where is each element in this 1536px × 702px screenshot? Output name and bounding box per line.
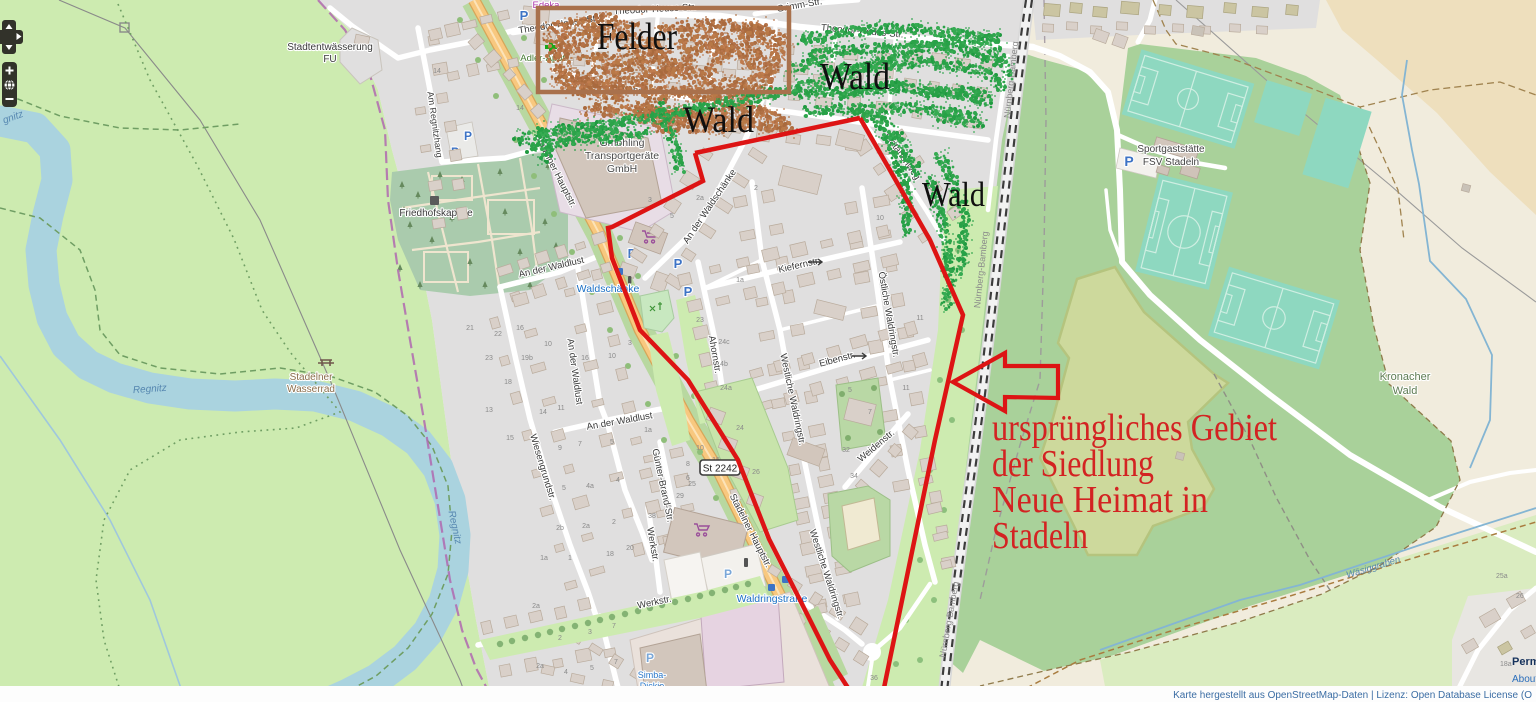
svg-text:P: P <box>724 567 732 581</box>
svg-text:11: 11 <box>557 405 564 412</box>
svg-text:Waldschänke: Waldschänke <box>577 283 640 295</box>
svg-text:4a: 4a <box>586 483 594 490</box>
svg-text:14: 14 <box>516 105 524 112</box>
svg-text:14: 14 <box>433 68 441 75</box>
svg-text:18: 18 <box>504 379 512 386</box>
svg-text:P: P <box>646 651 654 665</box>
svg-text:34: 34 <box>850 473 858 480</box>
svg-text:25: 25 <box>688 481 696 488</box>
svg-text:8: 8 <box>686 461 690 468</box>
svg-text:Karte hergestellt aus OpenStre: Karte hergestellt aus OpenStreetMap-Date… <box>1173 690 1532 701</box>
svg-text:GmbH: GmbH <box>607 163 637 175</box>
svg-text:15: 15 <box>506 435 514 442</box>
svg-text:26: 26 <box>1516 593 1524 600</box>
svg-text:2: 2 <box>612 519 616 526</box>
svg-text:4: 4 <box>564 669 568 676</box>
svg-text:1a: 1a <box>644 427 652 434</box>
svg-text:10: 10 <box>876 215 884 222</box>
svg-text:21: 21 <box>466 325 474 332</box>
svg-text:5: 5 <box>562 485 566 492</box>
svg-text:Wasserrad: Wasserrad <box>287 384 335 395</box>
svg-text:5: 5 <box>670 213 674 220</box>
svg-text:Stadeln: Stadeln <box>992 515 1088 557</box>
svg-text:2: 2 <box>558 635 562 642</box>
svg-text:10: 10 <box>696 445 704 452</box>
svg-text:2a: 2a <box>696 195 704 202</box>
svg-text:16: 16 <box>516 325 524 332</box>
svg-text:5: 5 <box>610 439 614 446</box>
svg-text:24: 24 <box>736 425 744 432</box>
svg-text:22: 22 <box>494 331 502 338</box>
svg-text:10: 10 <box>544 341 552 348</box>
svg-text:1a: 1a <box>540 555 548 562</box>
svg-text:18: 18 <box>606 551 614 558</box>
svg-text:10: 10 <box>608 353 616 360</box>
svg-text:7: 7 <box>614 659 618 666</box>
svg-text:2a: 2a <box>536 663 544 670</box>
svg-text:FSV Stadeln: FSV Stadeln <box>1143 157 1199 168</box>
svg-text:Wald: Wald <box>683 100 754 141</box>
svg-text:Wald: Wald <box>820 56 890 98</box>
svg-text:4: 4 <box>616 477 620 484</box>
svg-text:About g: About g <box>1512 674 1536 685</box>
svg-text:29: 29 <box>676 493 684 500</box>
svg-text:16: 16 <box>581 355 589 362</box>
svg-text:20: 20 <box>626 545 634 552</box>
svg-text:25a: 25a <box>1496 573 1508 580</box>
svg-text:FU: FU <box>323 54 336 65</box>
svg-text:7: 7 <box>578 441 582 448</box>
svg-text:11: 11 <box>916 315 923 322</box>
svg-text:9: 9 <box>558 445 562 452</box>
svg-text:23: 23 <box>485 355 493 362</box>
svg-text:13: 13 <box>485 407 493 414</box>
svg-text:5: 5 <box>590 665 594 672</box>
svg-text:St 2242: St 2242 <box>703 464 738 475</box>
svg-text:3: 3 <box>588 629 592 636</box>
svg-text:Simba-: Simba- <box>638 670 667 680</box>
svg-text:Wald: Wald <box>1393 385 1418 397</box>
svg-text:36: 36 <box>870 675 878 682</box>
svg-text:26: 26 <box>752 469 760 476</box>
svg-text:23: 23 <box>696 317 704 324</box>
svg-text:32: 32 <box>842 447 850 454</box>
svg-text:2b: 2b <box>556 525 564 532</box>
svg-text:3: 3 <box>648 197 652 204</box>
svg-text:Perma: Perma <box>1512 656 1536 668</box>
svg-text:38: 38 <box>648 513 656 520</box>
svg-text:3: 3 <box>628 340 632 347</box>
svg-text:Kronacher: Kronacher <box>1380 371 1431 383</box>
svg-text:2: 2 <box>754 185 758 192</box>
svg-text:7: 7 <box>612 623 616 630</box>
svg-text:Stadelner: Stadelner <box>290 372 333 383</box>
svg-text:18a: 18a <box>1500 661 1512 668</box>
svg-text:Stadtentwässerung: Stadtentwässerung <box>287 42 373 53</box>
svg-text:Felder: Felder <box>597 16 677 58</box>
svg-text:1: 1 <box>568 555 572 562</box>
svg-text:P: P <box>520 8 529 23</box>
svg-text:1a: 1a <box>736 277 744 284</box>
svg-text:Wald: Wald <box>922 176 985 214</box>
svg-text:P: P <box>674 256 683 271</box>
svg-text:11: 11 <box>902 385 909 392</box>
svg-text:14: 14 <box>539 409 547 416</box>
svg-text:5: 5 <box>848 387 852 394</box>
svg-text:2a: 2a <box>532 603 540 610</box>
svg-text:6: 6 <box>686 475 690 482</box>
svg-text:24c: 24c <box>718 339 730 346</box>
svg-text:2a: 2a <box>582 523 590 530</box>
svg-text:7: 7 <box>868 409 872 416</box>
svg-text:Sportgaststätte: Sportgaststätte <box>1137 144 1205 155</box>
svg-text:P: P <box>464 129 472 143</box>
svg-text:19b: 19b <box>521 355 533 362</box>
svg-text:Transportgeräte: Transportgeräte <box>585 150 659 162</box>
svg-text:P: P <box>1124 153 1133 169</box>
svg-text:24a: 24a <box>720 385 732 392</box>
